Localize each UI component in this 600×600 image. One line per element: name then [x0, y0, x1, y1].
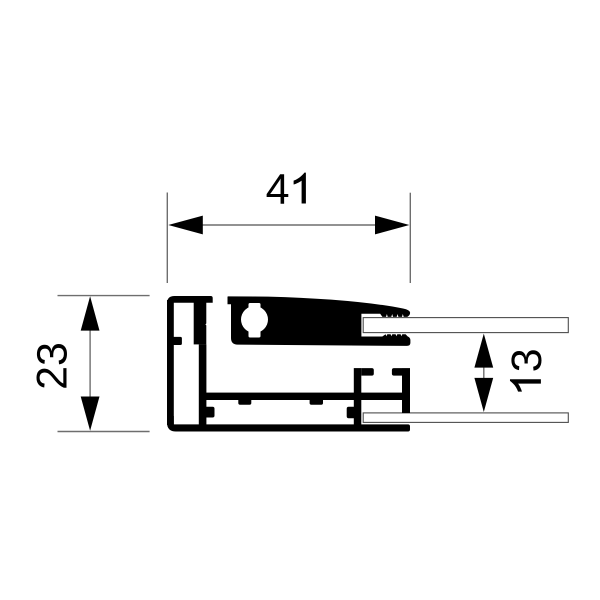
svg-text:23: 23 [29, 342, 77, 390]
svg-text:3: 3 [503, 348, 551, 372]
svg-text:4: 4 [266, 166, 290, 214]
